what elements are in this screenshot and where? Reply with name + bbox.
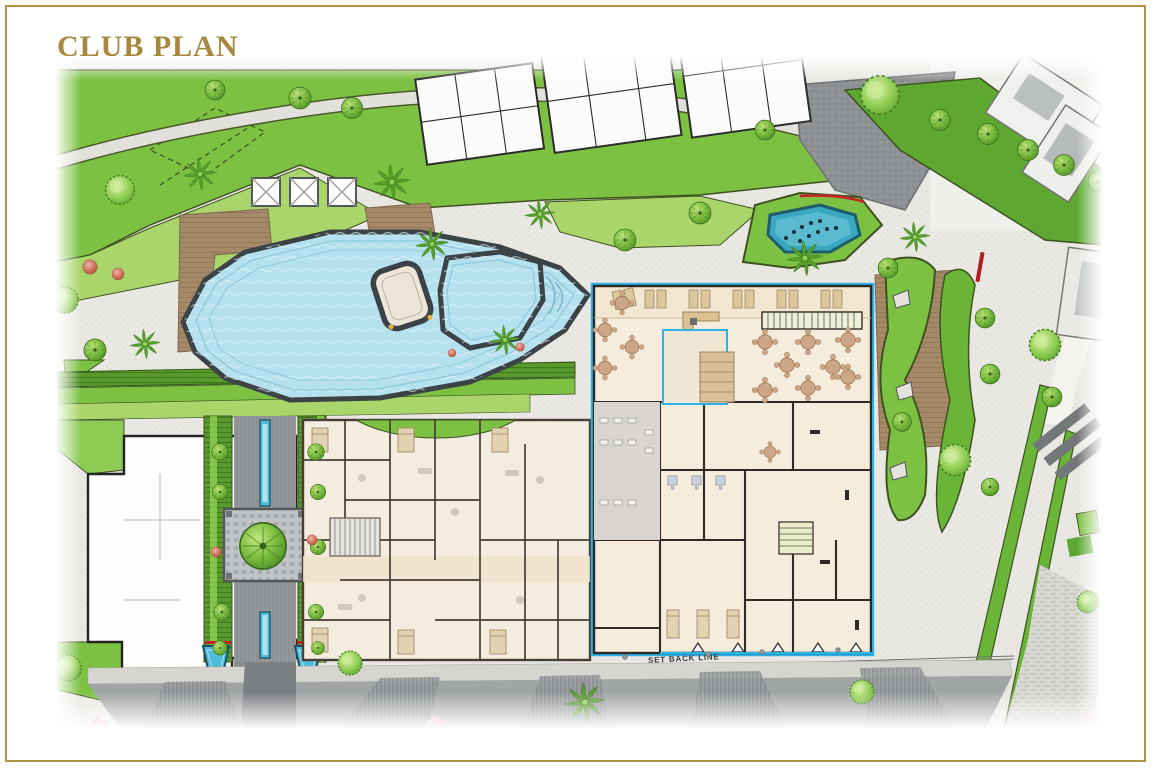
stairs-upper xyxy=(762,312,862,329)
club-plan-svg: SET BACK LINE xyxy=(0,0,1155,771)
stage-steps xyxy=(700,352,734,402)
courtyard-tree xyxy=(240,523,286,569)
apartment-building xyxy=(303,420,590,660)
pergolas xyxy=(252,178,356,206)
club-building xyxy=(592,284,873,655)
stairs-lower xyxy=(779,522,813,554)
spa-beds xyxy=(667,610,739,638)
